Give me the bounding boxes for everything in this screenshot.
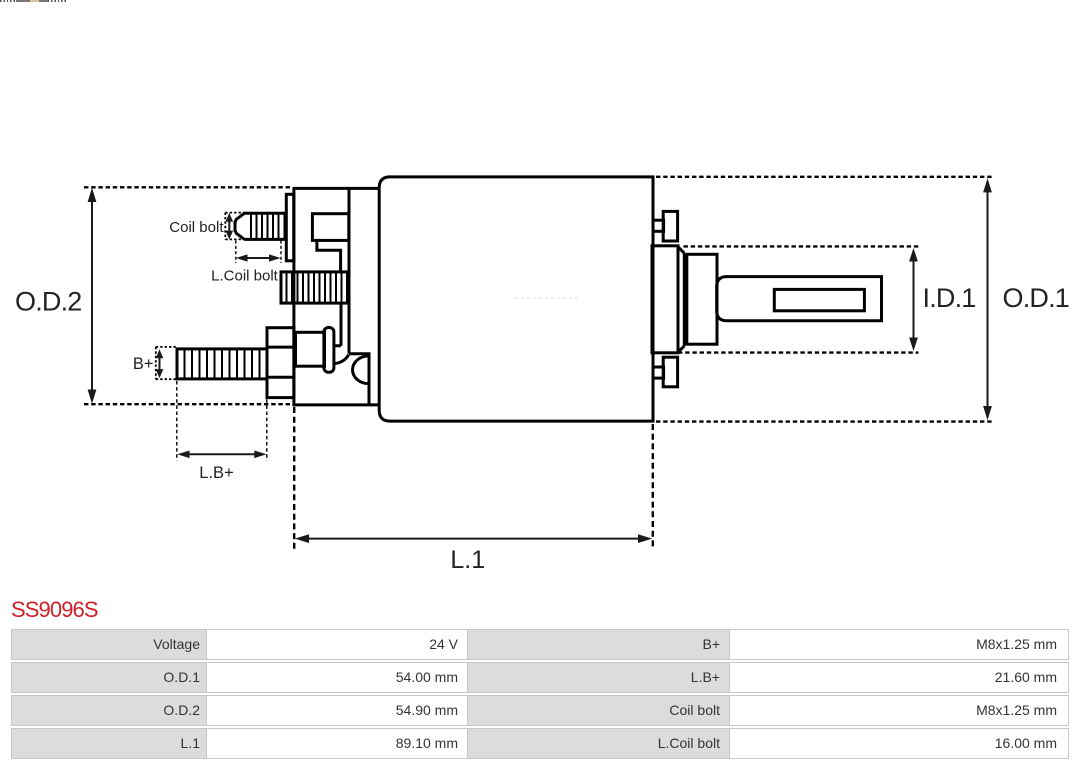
svg-text:O.D.2: O.D.2 [15, 287, 82, 317]
svg-text:O.D.1: O.D.1 [1003, 283, 1070, 313]
svg-text:B+: B+ [133, 355, 154, 373]
svg-text:L.Coil bolt: L.Coil bolt [211, 268, 279, 285]
svg-text:L.1: L.1 [450, 546, 485, 574]
svg-text:Coil bolt: Coil bolt [169, 219, 224, 236]
svg-text:L.B+: L.B+ [199, 464, 233, 482]
svg-text:I.D.1: I.D.1 [923, 283, 976, 313]
